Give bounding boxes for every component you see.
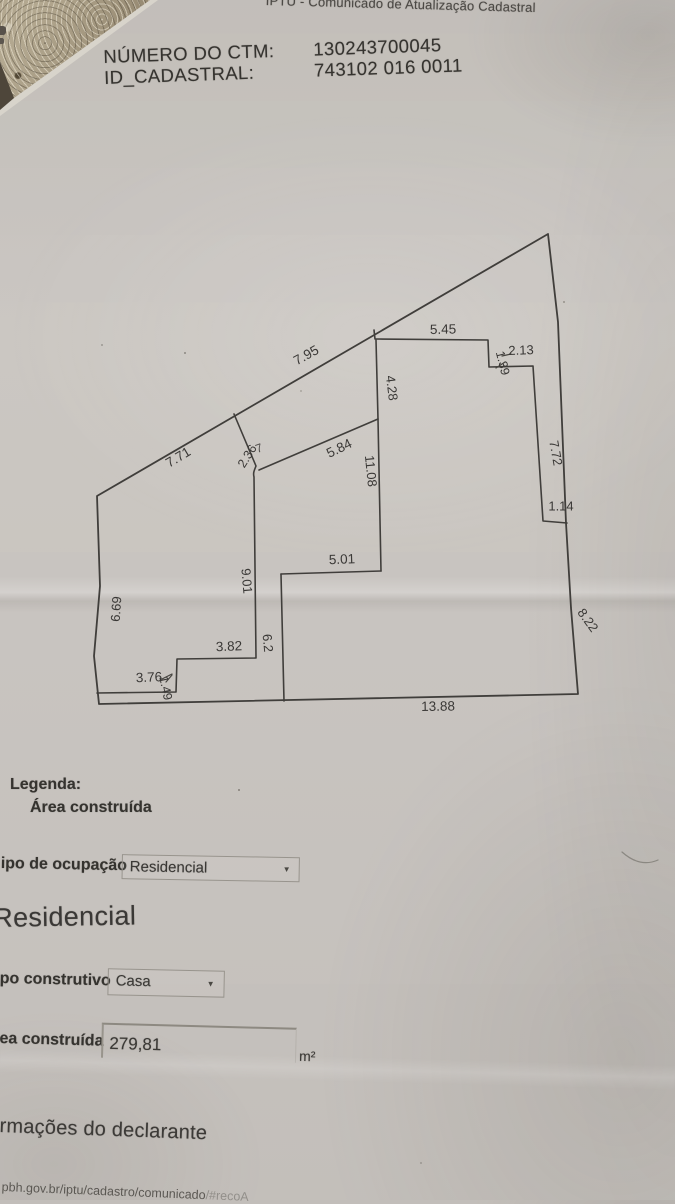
dim-5-84: 5.84 <box>324 435 355 460</box>
built-area-input[interactable]: 279,81 <box>101 1023 297 1063</box>
dim-11-08: 11.08 <box>362 455 380 488</box>
dropdown-caret-icon: ▼ <box>207 979 215 988</box>
occupation-label: ipo de ocupação <box>1 855 128 875</box>
dim-7-71: 7.71 <box>163 444 193 470</box>
dim-2-13: 2.13 <box>508 342 534 358</box>
construction-row: po construtivo Casa ▼ <box>0 964 300 1002</box>
dim-4-28: 4.28 <box>383 375 401 402</box>
dim-1-49: 1.49 <box>156 675 175 702</box>
building-inner-edge <box>281 571 381 574</box>
legend-item-built-area: Área construída <box>30 799 152 817</box>
occupation-dropdown[interactable]: Residencial ▼ <box>122 854 300 882</box>
dim-8-22: 8.22 <box>574 605 601 634</box>
dim-9-01: 9.01 <box>238 568 255 595</box>
legend-title: Legenda: <box>10 776 81 794</box>
photographed-document: IPTU - Comunicado de Atualização Cadastr… <box>0 0 675 1200</box>
dim-13-88: 13.88 <box>421 698 455 714</box>
scratch-mark <box>622 852 658 863</box>
construction-label: po construtivo <box>0 970 111 990</box>
photo-edge-mark <box>0 38 4 44</box>
occupation-subtitle: Residencial <box>0 901 136 934</box>
building-court-edge <box>281 574 284 701</box>
dim-7-95: 7.95 <box>291 342 321 368</box>
dim-5-01: 5.01 <box>329 551 356 567</box>
occupation-value: Residencial <box>130 858 208 876</box>
dim-5-45: 5.45 <box>430 321 457 336</box>
dim-3-82: 3.82 <box>216 638 243 654</box>
built-area-label: ea construída <box>0 1030 104 1051</box>
dim-1-14: 1.14 <box>548 499 573 514</box>
construction-value: Casa <box>115 972 150 990</box>
building-top-edge <box>374 330 567 523</box>
footer-url-tail: /#recoA <box>205 1188 249 1204</box>
lot-boundary <box>94 234 578 704</box>
construction-dropdown[interactable]: Casa ▼ <box>107 968 225 997</box>
dim-7-72: 7.72 <box>546 439 565 467</box>
dropdown-caret-icon: ▼ <box>283 865 291 874</box>
built-area-unit: m² <box>299 1048 316 1064</box>
photo-edge-mark <box>0 26 6 35</box>
dim-6-2: 6.2 <box>260 633 277 652</box>
dim-6-69: 6.69 <box>108 596 125 622</box>
built-area-value: 279,81 <box>109 1034 162 1055</box>
building-diagonal-edge <box>259 419 378 470</box>
